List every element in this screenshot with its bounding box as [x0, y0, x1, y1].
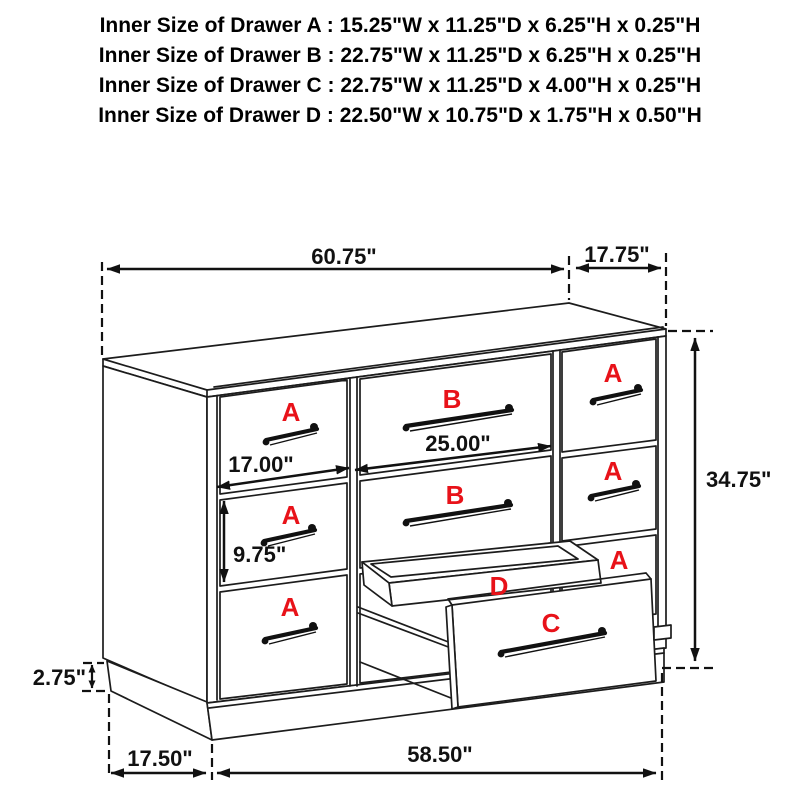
dresser-drawing: A A A A A A B B D C — [103, 303, 671, 740]
label-drawer-a: A — [282, 500, 301, 530]
label-drawer-a: A — [282, 397, 301, 427]
label-drawer-c: C — [542, 608, 561, 638]
spec-line-drawer-c: Inner Size of Drawer C : 22.75"W x 11.25… — [99, 74, 701, 97]
right-base-step — [654, 625, 671, 640]
label-drawer-b: B — [446, 480, 465, 510]
extension-line — [82, 663, 109, 691]
dim-top-width-label: 60.75" — [311, 244, 376, 269]
dresser-dimension-diagram: Inner Size of Drawer A : 15.25"W x 11.25… — [0, 0, 800, 800]
label-drawer-b: B — [443, 384, 462, 414]
label-drawer-a: A — [604, 456, 623, 486]
spec-line-drawer-b: Inner Size of Drawer B : 22.75"W x 11.25… — [99, 44, 701, 67]
dimension-diagram-page: Inner Size of Drawer A : 15.25"W x 11.25… — [0, 0, 800, 800]
dim-drawer-height-label: 9.75" — [233, 542, 286, 567]
left-side-panel — [103, 366, 207, 703]
dim-drawer-b-width-label: 25.00" — [425, 431, 490, 456]
label-drawer-d: D — [490, 571, 509, 601]
spec-line-drawer-d: Inner Size of Drawer D : 22.50"W x 10.75… — [98, 104, 702, 127]
dim-base-side-inset-label: 17.50" — [127, 746, 192, 771]
label-drawer-a: A — [604, 358, 623, 388]
spec-line-drawer-a: Inner Size of Drawer A : 15.25"W x 11.25… — [100, 14, 701, 37]
dim-base-side-inset: 17.50" — [111, 746, 206, 773]
dim-base-front-width-label: 58.50" — [407, 742, 472, 767]
label-drawer-a: A — [281, 592, 300, 622]
dim-overall-height: 34.75" — [695, 338, 771, 661]
dim-overall-height-label: 34.75" — [706, 467, 771, 492]
spec-text-block: Inner Size of Drawer A : 15.25"W x 11.25… — [98, 14, 702, 127]
dim-base-height: 2.75" — [33, 665, 92, 690]
label-drawer-a: A — [610, 545, 629, 575]
dim-base-front-width: 58.50" — [217, 742, 656, 773]
dim-top-width: 60.75" — [107, 244, 564, 269]
dim-drawer-a-width-label: 17.00" — [228, 452, 293, 477]
dim-top-depth: 17.75" — [576, 242, 661, 268]
dim-top-depth-label: 17.75" — [584, 242, 649, 267]
dim-base-height-label: 2.75" — [33, 665, 86, 690]
drawer-a-left-middle — [220, 483, 347, 586]
